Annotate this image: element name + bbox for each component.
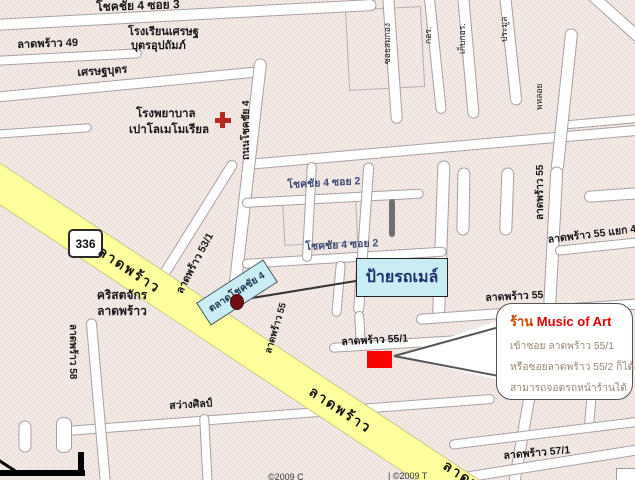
label-ladprao-49: ลาดพร้าว 49	[17, 37, 78, 52]
road-segment	[582, 0, 635, 55]
label-chokchai4-soi2-upper: โชคชัย 4 ซอย 2	[287, 175, 361, 191]
road-segment	[456, 167, 470, 235]
callout-line: เข้าซอย ลาดพร้าว 55/1	[510, 336, 624, 357]
callout-title-prefix: ร้าน	[510, 314, 533, 329]
road-segment	[0, 66, 261, 103]
label-thanon-chokchai4: ถนนโชคชัย 4	[241, 100, 253, 160]
label-sawang-sin: สว่างศิลป์	[169, 397, 213, 412]
bus-stop-label: ป้ายรถเมล์	[366, 265, 439, 290]
road-segment	[56, 417, 72, 453]
label-school-line2: บุตรอุปถัมภ์	[131, 40, 186, 53]
label-soi-top-d: ประมูล	[500, 17, 510, 42]
scale-bar	[78, 452, 84, 474]
bus-stop-box: ป้ายรถเมล์	[356, 258, 448, 297]
road-segment	[457, 0, 480, 119]
label-hospital-line1: โรงพยาบาล	[136, 108, 196, 121]
road-segment	[331, 261, 346, 318]
label-church-line2: ลาดพร้าว	[70, 305, 174, 319]
road-segment	[0, 123, 92, 139]
road-median	[389, 199, 395, 237]
label-soi-top-e: พหลอย	[535, 83, 545, 110]
label-hospital-line2: เปาโลเมโมเรียล	[129, 124, 209, 137]
bus-stop-dot	[230, 294, 244, 310]
label-soi-top-b: กอร.	[424, 27, 434, 44]
road-segment	[19, 420, 32, 452]
callout-line: สามารถจอดรถหน้าร้านได้	[510, 378, 624, 399]
label-setthabut: เศรษฐบุตร	[77, 64, 128, 80]
hospital-cross-icon	[220, 112, 225, 128]
label-soi-top-c: เก็บกอร.	[458, 23, 468, 54]
map-canvas: 336 ตลาดโชคชัย 4 ป้ายรถเมล์ ร้าน Music o…	[0, 0, 635, 480]
legend-box	[616, 468, 635, 480]
label-church-line1: คริสตจักร	[70, 289, 174, 303]
callout-title: ร้าน Music of Art	[510, 311, 624, 332]
label-school-line1: โรงเรียนเศรษฐ	[128, 26, 199, 39]
shop-location-marker	[367, 351, 392, 368]
label-copyright-1: ©2009 C	[268, 472, 304, 480]
road-segment	[499, 167, 514, 235]
label-ladprao-55-vertical: ลาดพร้าว 55	[535, 165, 547, 220]
callout-title-name: Music of Art	[537, 314, 612, 329]
road-segment	[424, 0, 447, 114]
route-shield-number: 336	[75, 237, 95, 251]
road-segment	[448, 416, 635, 450]
shop-callout: ร้าน Music of Art เข้าซอย ลาดพร้าว 55/1ห…	[496, 303, 633, 400]
road-segment	[550, 27, 578, 173]
road-segment	[66, 394, 496, 436]
callout-body: เข้าซอย ลาดพร้าว 55/1หรือซอยลาดพร้าว 55/…	[510, 336, 624, 399]
label-ladprao-55-horizontal: ลาดพร้าว 55	[485, 289, 544, 304]
label-copyright-2: | ©2009 T	[388, 471, 427, 480]
road-segment	[86, 318, 111, 480]
label-ladprao-58: ลาดพร้าว 58	[67, 324, 79, 379]
road-segment	[584, 187, 635, 203]
label-soi-top-a: ซอยสมกอง	[383, 23, 393, 64]
callout-line: หรือซอยลาดพร้าว 55/2 ก็ได้	[510, 357, 624, 378]
